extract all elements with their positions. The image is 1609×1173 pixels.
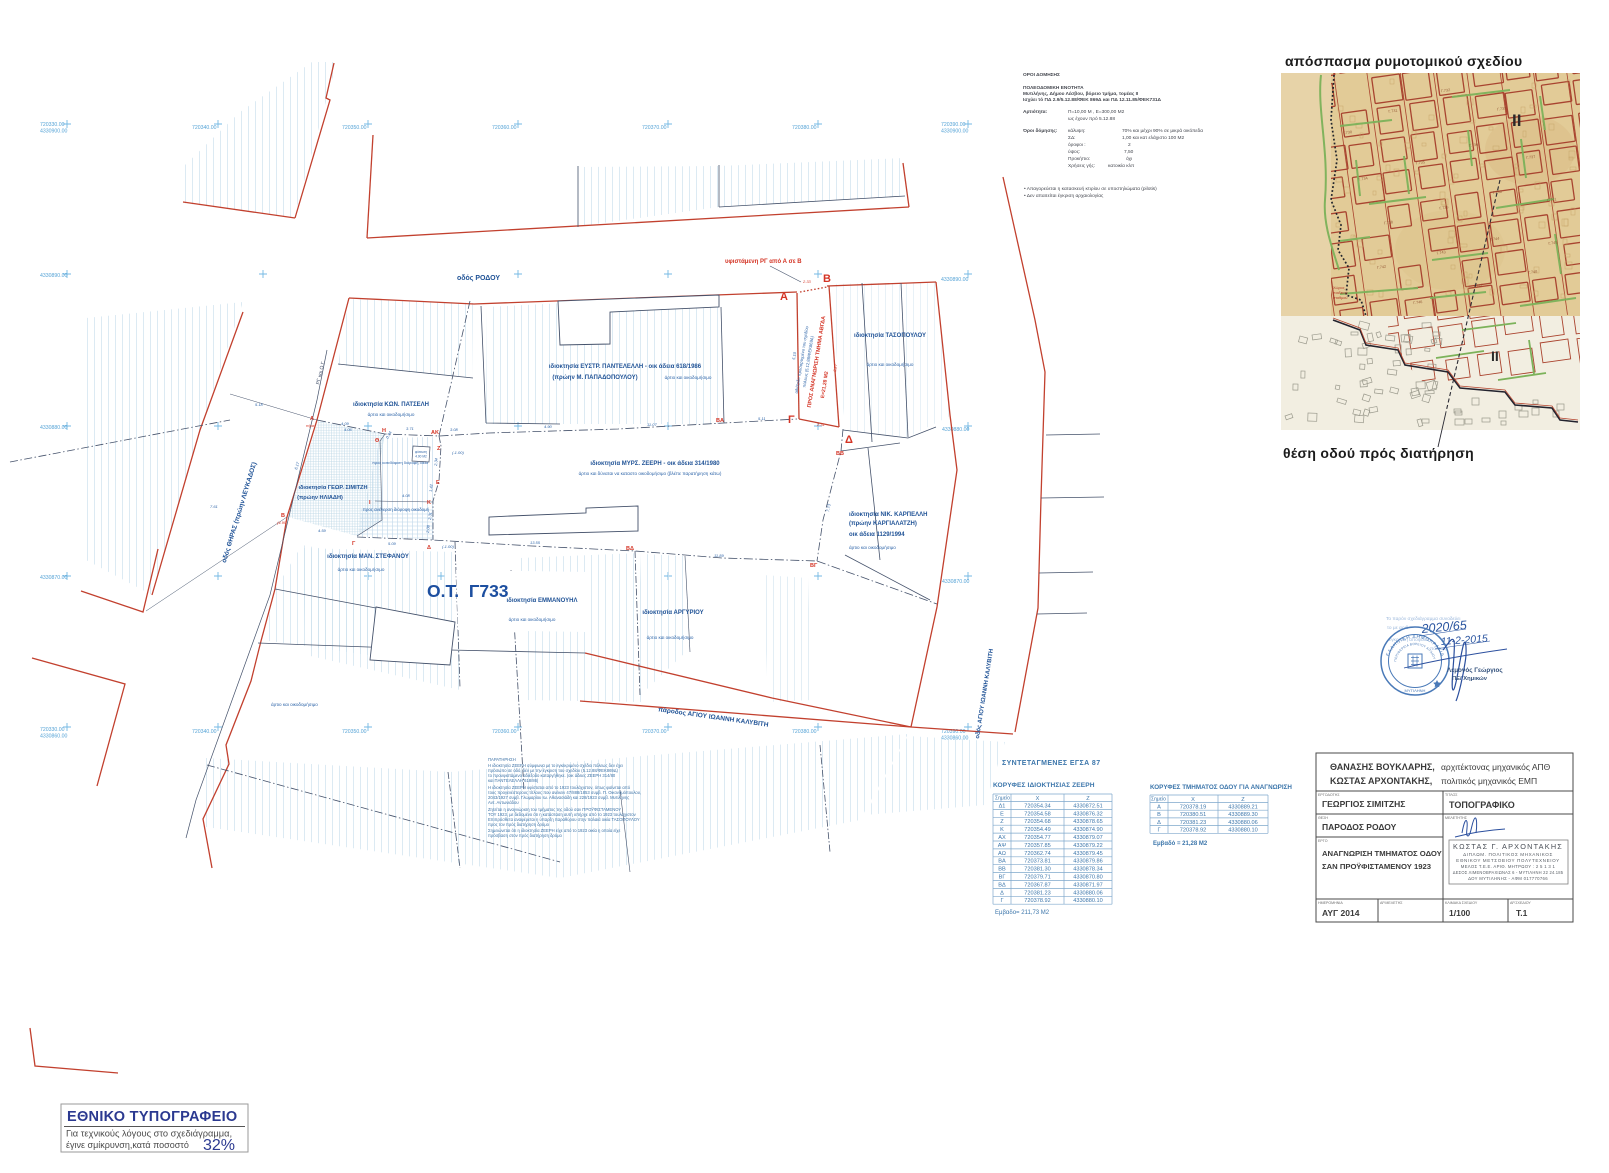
svg-text:4330900.00: 4330900.00 xyxy=(40,129,68,135)
svg-text:720340.00: 720340.00 xyxy=(192,125,217,131)
svg-text:5.11: 5.11 xyxy=(758,416,766,421)
svg-text:Γ: Γ xyxy=(1157,828,1160,834)
svg-text:4330870.00: 4330870.00 xyxy=(942,579,970,585)
svg-text:Δ1: Δ1 xyxy=(999,803,1006,809)
svg-text:ΔΙΠΛΩΜ. ΠΟΛΙΤΙΚΟΣ ΜΗΧΑΝΙΚΟΣ: ΔΙΠΛΩΜ. ΠΟΛΙΤΙΚΟΣ ΜΗΧΑΝΙΚΟΣ xyxy=(1463,852,1553,857)
svg-text:7,50: 7,50 xyxy=(1124,149,1134,155)
svg-text:ιδιοκτησία ΚΩΝ. ΠΑΤΣΕΛΗ: ιδιοκτησία ΚΩΝ. ΠΑΤΣΕΛΗ xyxy=(353,402,429,408)
svg-text:ΒΒ: ΒΒ xyxy=(998,867,1006,873)
svg-text:ιδιοκτησία ΤΑΣΟΠΟΥΛΟΥ: ιδιοκτησία ΤΑΣΟΠΟΥΛΟΥ xyxy=(854,333,926,339)
svg-text:ΒΔ: ΒΔ xyxy=(626,546,634,552)
svg-text:προς κατεδάφιση διόροφη οικία: προς κατεδάφιση διόροφη οικία xyxy=(372,460,429,465)
svg-text:ΣΥΝΤΕΤΑΓΜΕΝΕΣ ΕΓΣΑ 87: ΣΥΝΤΕΤΑΓΜΕΝΕΣ ΕΓΣΑ 87 xyxy=(1002,760,1101,767)
svg-text:8.27: 8.27 xyxy=(832,363,838,372)
svg-text:ΕΘΝΙΚΟΥ ΜΕΤΣΟΒΙΟΥ ΠΟΛΥΤΕΧΝΕΙ: ΕΘΝΙΚΟΥ ΜΕΤΣΟΒΙΟΥ ΠΟΛΥΤΕΧΝΕΙΟΥ xyxy=(1456,858,1560,863)
svg-text:720378.19: 720378.19 xyxy=(1180,804,1206,810)
svg-text:πάροδος ΑΓΙΟΥ ΙΩΑΝΝΗ ΚΑΛΥΒΙΤΗ: πάροδος ΑΓΙΟΥ ΙΩΑΝΝΗ ΚΑΛΥΒΙΤΗ xyxy=(658,706,769,728)
svg-text:ΑΥΓ 2014: ΑΥΓ 2014 xyxy=(1322,908,1360,918)
svg-text:οδός ΑΓΙΟΥ ΙΩΑΝΝΗ ΚΑΛΥΒΙΤΗ: οδός ΑΓΙΟΥ ΙΩΑΝΝΗ ΚΑΛΥΒΙΤΗ xyxy=(975,648,995,739)
svg-text:οικ άδεια 1129/1994: οικ άδεια 1129/1994 xyxy=(849,532,905,538)
svg-text:Μυτιλήνης, Δήμου Λέσβου, βόρει: Μυτιλήνης, Δήμου Λέσβου, βόρειο τμήμα, τ… xyxy=(1023,91,1139,97)
svg-text:X: X xyxy=(1036,796,1040,802)
svg-text:4330879.07: 4330879.07 xyxy=(1073,835,1103,841)
svg-text:720370.00: 720370.00 xyxy=(642,125,667,131)
svg-text:• Δεν απαιτείται έγκριση αρχαι: • Δεν απαιτείται έγκριση αρχαιολογίας xyxy=(1024,192,1104,199)
svg-text:1,00 και κατ ελάχιστο 100 Μ2: 1,00 και κατ ελάχιστο 100 Μ2 xyxy=(1122,134,1184,141)
svg-text:5.10: 5.10 xyxy=(791,351,797,360)
svg-text:πίρα: πίρα xyxy=(306,423,315,428)
svg-text:11.07: 11.07 xyxy=(647,422,657,427)
svg-text:ιδιοκτησία ΕΥΣΤΡ. ΠΑΝΤΕΛΕΛΛΗ -: ιδιοκτησία ΕΥΣΤΡ. ΠΑΝΤΕΛΕΛΛΗ - οικ άδεια… xyxy=(549,364,702,370)
svg-text:ΜΕΛΟΣ Τ.Ε.Ε. ΑΡΙΘ. Μ: ΜΕΛΟΣ Τ.Ε.Ε. ΑΡΙΘ. ΜΗΤΡΩΟΥ : 2 5 1 3 1 xyxy=(1461,864,1556,869)
svg-text:4.59: 4.59 xyxy=(318,528,327,533)
svg-text:720370.00: 720370.00 xyxy=(642,729,667,735)
svg-text:όροφοι :: όροφοι : xyxy=(1068,141,1086,148)
svg-text:άρτιο και δύναται να καταστο ο: άρτιο και δύναται να καταστο οικοδομήσιμ… xyxy=(579,470,722,476)
svg-text:720360.00: 720360.00 xyxy=(492,729,517,735)
svg-text:720330.00: 720330.00 xyxy=(40,727,65,733)
svg-text:4.90: 4.90 xyxy=(544,424,553,429)
svg-text:4330879.86: 4330879.86 xyxy=(1073,859,1103,865)
svg-text:4330880.00: 4330880.00 xyxy=(40,425,68,431)
svg-text:ΔΕΣΟΣ ΛΙΜΕΝΟΒΡΑΧΙΩΝΑΣ 6 - ΜΥΤ: ΔΕΣΟΣ ΛΙΜΕΝΟΒΡΑΧΙΩΝΑΣ 6 - ΜΥΤΙΛΗΝΗ 22 24… xyxy=(1453,870,1564,875)
svg-text:Λεμονός Γεώργιος: Λεμονός Γεώργιος xyxy=(1447,667,1503,674)
svg-text:ΘΕΣΗ: ΘΕΣΗ xyxy=(1318,816,1328,820)
svg-text:13.55: 13.55 xyxy=(530,540,541,545)
svg-text:720378.92: 720378.92 xyxy=(1180,828,1206,834)
svg-text:ως έχουν πρό 5.12.88: ως έχουν πρό 5.12.88 xyxy=(1068,115,1115,122)
svg-text:720354.58: 720354.58 xyxy=(1024,811,1050,817)
svg-text:πολιτικός μηχανικός ΕΜΠ: πολιτικός μηχανικός ΕΜΠ xyxy=(1441,776,1537,786)
svg-text:Ισχύει τό ΠΔ 2.9/5.12.88/ΦΕΚ 8: Ισχύει τό ΠΔ 2.9/5.12.88/ΦΕΚ 869Δ και ΠΔ… xyxy=(1023,97,1162,103)
svg-text:720360.00: 720360.00 xyxy=(492,125,517,131)
svg-text:Δ: Δ xyxy=(845,434,853,446)
svg-text:άρτιο και οικοδομήσιμο: άρτιο και οικοδομήσιμο xyxy=(271,701,318,707)
svg-text:4330872.51: 4330872.51 xyxy=(1073,803,1103,809)
svg-text:πρόσβαση στον πρός διατήρηση δ: πρόσβαση στον πρός διατήρηση δρόμο xyxy=(488,833,563,838)
svg-text:παιδικού: παιδικού xyxy=(1333,291,1348,295)
svg-text:ΡΓ και Ο.Γ.: ΡΓ και Ο.Γ. xyxy=(315,360,327,385)
svg-text:4330900.00: 4330900.00 xyxy=(941,129,969,135)
svg-text:θέση οδού πρός διατήρηση: θέση οδού πρός διατήρηση xyxy=(1283,445,1474,461)
svg-text:4330876.32: 4330876.32 xyxy=(1073,811,1103,817)
svg-text:ΒΒ: ΒΒ xyxy=(836,451,844,457)
svg-text:ΑΩ: ΑΩ xyxy=(998,851,1006,857)
svg-text:2.33: 2.33 xyxy=(802,279,812,284)
svg-text:4330889.21: 4330889.21 xyxy=(1228,804,1258,810)
svg-text:ΤΙΤΛΟΣ: ΤΙΤΛΟΣ xyxy=(1445,793,1458,797)
svg-text:Π=10,00 Μ , Ε=300,00 Μ2: Π=10,00 Μ , Ε=300,00 Μ2 xyxy=(1068,109,1125,115)
svg-text:κατοικία κλπ: κατοικία κλπ xyxy=(1108,163,1135,169)
svg-text:προς τον πρός διατήρηση δρόμο: προς τον πρός διατήρηση δρόμο xyxy=(488,822,550,827)
svg-text:ιδιοκτησία ΝΙΚ. ΚΑΡΠΕΛΛΗ: ιδιοκτησία ΝΙΚ. ΚΑΡΠΕΛΛΗ xyxy=(849,512,927,518)
svg-text:Εμβαδό = 21,28 Μ2: Εμβαδό = 21,28 Μ2 xyxy=(1153,841,1208,847)
svg-text:απόσπασμα ρυμοτομικού σχεδίου: απόσπασμα ρυμοτομικού σχεδίου xyxy=(1285,53,1522,69)
svg-text:(πρώην ΗΛΙΑΔΗ): (πρώην ΗΛΙΑΔΗ) xyxy=(297,495,343,501)
svg-text:κάλυψη:: κάλυψη: xyxy=(1068,127,1085,134)
svg-text:ΤΟΠΟΓΡΑΦΙΚΟ: ΤΟΠΟΓΡΑΦΙΚΟ xyxy=(1449,800,1515,810)
svg-text:Α: Α xyxy=(1157,804,1161,810)
svg-text:ΒΑ: ΒΑ xyxy=(998,859,1006,865)
svg-text:4330880.06: 4330880.06 xyxy=(1073,890,1103,896)
svg-text:Z: Z xyxy=(1241,797,1245,803)
svg-text:4330871.97: 4330871.97 xyxy=(1073,882,1103,888)
svg-text:Χρήσεις γής:: Χρήσεις γής: xyxy=(1068,162,1095,169)
svg-text:4.06: 4.06 xyxy=(344,427,353,432)
svg-text:5.18: 5.18 xyxy=(255,402,264,407)
svg-text:Ο.Τ. Γ733: Ο.Τ. Γ733 xyxy=(427,581,509,601)
svg-text:2.34: 2.34 xyxy=(433,457,439,467)
svg-text:σταθμού: σταθμού xyxy=(1333,296,1347,300)
svg-text:Δ: Δ xyxy=(1157,820,1161,826)
svg-text:720378.92: 720378.92 xyxy=(1024,898,1050,904)
svg-text:ΘΑΝΑΣΗΣ ΒΟΥΚΛΑΡΗΣ,: ΘΑΝΑΣΗΣ ΒΟΥΚΛΑΡΗΣ, xyxy=(1330,762,1435,772)
svg-text:2: 2 xyxy=(1128,142,1131,148)
svg-text:Α: Α xyxy=(780,291,788,303)
svg-text:11.89: 11.89 xyxy=(714,553,724,558)
svg-text:2.31: 2.31 xyxy=(427,512,433,521)
svg-text:Γ: Γ xyxy=(1000,898,1003,904)
svg-text:ΚΟΡΥΦΕΣ ΤΜΗΜΑΤΟΣ ΟΔΟΥ ΓΙΑ ΑΝΑΓ: ΚΟΡΥΦΕΣ ΤΜΗΜΑΤΟΣ ΟΔΟΥ ΓΙΑ ΑΝΑΓΝΩΡΙΣΗ xyxy=(1150,784,1292,791)
svg-text:4.09: 4.09 xyxy=(341,421,350,426)
svg-text:ΕΡΓΟ: ΕΡΓΟ xyxy=(1318,839,1328,843)
svg-text:720373.81: 720373.81 xyxy=(1024,859,1050,865)
svg-text:(πρώην ΚΑΡΓΙΑΛΑΤΖΗ): (πρώην ΚΑΡΓΙΑΛΑΤΖΗ) xyxy=(849,521,917,527)
svg-text:άρτιο και οικοδομήσιμο: άρτιο και οικοδομήσιμο xyxy=(867,361,914,367)
svg-text:Β: Β xyxy=(1157,812,1161,818)
svg-text:ΕΘΝΙΚΟ ΤΥΠΟΓΡΑΦΕΙΟ: ΕΘΝΙΚΟ ΤΥΠΟΓΡΑΦΕΙΟ xyxy=(67,1109,238,1125)
svg-text:(πρώην Μ. ΠΑΠΑΔΟΠΟΥΛΟΥ): (πρώην Μ. ΠΑΠΑΔΟΠΟΥΛΟΥ) xyxy=(552,375,637,381)
svg-text:3.71: 3.71 xyxy=(406,426,414,431)
svg-text:720354.49: 720354.49 xyxy=(1024,827,1050,833)
svg-text:και ΠΑΝΤΕΛΕΛΛΗ 618/86): και ΠΑΝΤΕΛΕΛΛΗ 618/86) xyxy=(488,778,539,783)
svg-text:ΣΑΝ ΠΡΟΫΦΙΣΤΑΜΕΝΟΥ 1923: ΣΑΝ ΠΡΟΫΦΙΣΤΑΜΕΝΟΥ 1923 xyxy=(1322,862,1431,871)
svg-text:4.00 Μ2: 4.00 Μ2 xyxy=(415,455,427,459)
svg-text:4330860.00: 4330860.00 xyxy=(40,734,68,740)
svg-text:άρτιο και οικοδομήσιμο: άρτιο και οικοδομήσιμο xyxy=(665,374,712,380)
svg-text:• Απαγορεύεται η κατασκευή κτι: • Απαγορεύεται η κατασκευή κτιρίου σε υπ… xyxy=(1024,185,1157,192)
svg-text:ιδιοκτησία ΕΜΜΑΝΟΥΗΛ: ιδιοκτησία ΕΜΜΑΝΟΥΗΛ xyxy=(507,598,578,604)
svg-text:προς ανέγερση διόροφη οικοδομή: προς ανέγερση διόροφη οικοδομή xyxy=(363,507,430,512)
svg-text:Ε: Ε xyxy=(436,480,440,486)
svg-text:Προκήπιο:: Προκήπιο: xyxy=(1068,155,1090,162)
svg-text:Όροι δόμησης:: Όροι δόμησης: xyxy=(1022,128,1058,134)
svg-text:4330890.00: 4330890.00 xyxy=(40,273,68,279)
svg-text:ΜΕΛΕΤΗΤΗΣ: ΜΕΛΕΤΗΤΗΣ xyxy=(1445,816,1468,820)
svg-text:Αρτιότητα:: Αρτιότητα: xyxy=(1023,109,1048,115)
svg-text:ΑΝΑΓΝΩΡΙΣΗ ΤΜΗΜΑΤΟΣ ΟΔΟΥ: ΑΝΑΓΝΩΡΙΣΗ ΤΜΗΜΑΤΟΣ ΟΔΟΥ xyxy=(1322,849,1442,858)
svg-text:720367.87: 720367.87 xyxy=(1024,882,1050,888)
svg-text:720362.74: 720362.74 xyxy=(1024,851,1050,857)
svg-text:720381.23: 720381.23 xyxy=(1180,820,1206,826)
svg-text:όχι: όχι xyxy=(1126,155,1132,162)
svg-text:4330870.00: 4330870.00 xyxy=(40,575,68,581)
svg-text:ιδιοκτησία ΑΡΓΥΡΙΟΥ: ιδιοκτησία ΑΡΓΥΡΙΟΥ xyxy=(642,610,703,616)
svg-text:άρτιο και οικοδομήσιμο: άρτιο και οικοδομήσιμο xyxy=(509,616,556,622)
svg-text:ΠΑΡΑΤΗΡΗΣΗ: ΠΑΡΑΤΗΡΗΣΗ xyxy=(488,757,516,762)
svg-text:ΑΨ: ΑΨ xyxy=(998,843,1007,849)
svg-text:720350.00: 720350.00 xyxy=(342,125,367,131)
svg-text:2.08: 2.08 xyxy=(425,524,431,534)
svg-text:Σημείο: Σημείο xyxy=(1151,797,1166,803)
svg-text:ύψος:: ύψος: xyxy=(1068,148,1080,155)
svg-text:ιδιοκτησία ΜΥΡΣ. ΖΕΕΡΗ - οικ: ιδιοκτησία ΜΥΡΣ. ΖΕΕΡΗ - οικ άδεια 314/1… xyxy=(590,461,720,467)
svg-text:4330878.65: 4330878.65 xyxy=(1073,819,1103,825)
svg-text:1.42: 1.42 xyxy=(428,483,434,492)
svg-text:ΒΓ: ΒΓ xyxy=(810,563,818,569)
svg-text:άρτιο και οικοδομήσιμο: άρτιο και οικοδομήσιμο xyxy=(647,634,694,640)
svg-text:720350.00: 720350.00 xyxy=(342,729,367,735)
svg-text:ΠΟΛΕΟΔΟΜΙΚΗ ΕΝΟΤΗΤΑ: ΠΟΛΕΟΔΟΜΙΚΗ ΕΝΟΤΗΤΑ xyxy=(1023,85,1084,91)
svg-text:ΑΧ: ΑΧ xyxy=(998,835,1006,841)
svg-text:1/100: 1/100 xyxy=(1449,908,1471,918)
svg-text:ΙΙ: ΙΙ xyxy=(1491,348,1499,364)
svg-text:Β: Β xyxy=(281,513,285,519)
svg-text:Β: Β xyxy=(823,273,831,285)
svg-text:720381.30: 720381.30 xyxy=(1024,867,1050,873)
svg-text:Χώρος: Χώρος xyxy=(1333,286,1345,290)
svg-text:ΜΥΤΙΛΗΝΗ: ΜΥΤΙΛΗΝΗ xyxy=(1405,688,1426,693)
svg-text:2020/65: 2020/65 xyxy=(1420,618,1467,636)
svg-text:ΒΓ: ΒΓ xyxy=(999,875,1006,881)
svg-text:4330880.00: 4330880.00 xyxy=(942,427,970,433)
svg-text:ΠΕΡΙΦΕΡΕΙΑ ΒΟΡΕΙΟΥ ΑΙΓΑΙΟΥ: ΠΕΡΙΦΕΡΕΙΑ ΒΟΡΕΙΟΥ ΑΙΓΑΙΟΥ xyxy=(1393,642,1436,662)
svg-text:ΒΔ: ΒΔ xyxy=(998,882,1006,888)
svg-text:Η: Η xyxy=(382,428,386,434)
svg-text:Κ: Κ xyxy=(1000,827,1004,833)
svg-text:αρχιτέκτονας μηχανικός ΑΠΘ: αρχιτέκτονας μηχανικός ΑΠΘ xyxy=(1441,762,1551,772)
svg-text:Τ.1: Τ.1 xyxy=(1516,908,1528,918)
svg-text:ΒΑ: ΒΑ xyxy=(716,418,724,424)
svg-text:4330880.10: 4330880.10 xyxy=(1073,898,1103,904)
svg-text:ΔΟΥ ΜΥΤΙΛΗΝΗΣ - ΑΦΜ 0177: ΔΟΥ ΜΥΤΙΛΗΝΗΣ - ΑΦΜ 017770766 xyxy=(1468,876,1548,881)
svg-text:οδός ΡΟΔΟΥ: οδός ΡΟΔΟΥ xyxy=(457,275,500,282)
svg-text:Ε: Ε xyxy=(1000,811,1004,817)
svg-text:32%: 32% xyxy=(203,1137,235,1154)
svg-text:ιδιοκτησία ΜΑΝ. ΣΤΕΦΑΝΟΥ: ιδιοκτησία ΜΑΝ. ΣΤΕΦΑΝΟΥ xyxy=(327,554,409,560)
svg-text:άρτιο και οικοδομήσιμο: άρτιο και οικοδομήσιμο xyxy=(849,544,896,550)
svg-text:ΣΔ:: ΣΔ: xyxy=(1068,135,1076,141)
svg-text:11-2-2015: 11-2-2015 xyxy=(1440,633,1488,648)
svg-text:Ε=21,28 Μ2: Ε=21,28 Μ2 xyxy=(820,371,830,399)
svg-text:70% και μέχρι 90% σε μικρά οι: 70% και μέχρι 90% σε μικρά οικόπεδα xyxy=(1122,127,1203,134)
svg-text:άρτιο και οικοδομήσιμο: άρτιο και οικοδομήσιμο xyxy=(338,566,385,572)
svg-text:Ζ: Ζ xyxy=(1000,819,1004,825)
svg-text:4330880.06: 4330880.06 xyxy=(1228,820,1258,826)
svg-text:6.17: 6.17 xyxy=(293,461,300,471)
svg-text:Εμβαδο= 211,73 Μ2: Εμβαδο= 211,73 Μ2 xyxy=(995,910,1050,916)
svg-text:720380.00: 720380.00 xyxy=(792,729,817,735)
svg-text:(4.99: (4.99 xyxy=(277,520,287,525)
svg-text:Α: Α xyxy=(310,416,314,422)
svg-text:4330879.22: 4330879.22 xyxy=(1073,843,1103,849)
svg-text:(-1.00): (-1.00) xyxy=(442,544,454,549)
svg-text:5.09: 5.09 xyxy=(388,541,397,546)
svg-text:X: X xyxy=(1191,797,1195,803)
svg-text:ΙΙ: ΙΙ xyxy=(1512,111,1521,130)
svg-text:Θ: Θ xyxy=(375,438,380,444)
svg-text:ΚΩΣΤΑΣ Γ. ΑΡΧΟΝΤΑΚΗΣ: ΚΩΣΤΑΣ Γ. ΑΡΧΟΝΤΑΚΗΣ xyxy=(1453,842,1563,851)
svg-text:Γ: Γ xyxy=(352,541,356,547)
svg-text:ΕΡΓΟΔΟΤΗΣ: ΕΡΓΟΔΟΤΗΣ xyxy=(1318,793,1340,797)
svg-text:3.08: 3.08 xyxy=(450,427,459,432)
svg-text:ΚΛΙΜΑΚΑ ΣΧΕΔΙΟΥ: ΚΛΙΜΑΚΑ ΣΧΕΔΙΟΥ xyxy=(1445,901,1478,905)
svg-text:Σημείο: Σημείο xyxy=(995,796,1010,802)
svg-text:υφιστάμενη ΡΓ από Α σε Β: υφιστάμενη ΡΓ από Α σε Β xyxy=(725,259,802,265)
svg-text:720330.00: 720330.00 xyxy=(40,122,65,128)
svg-text:άρτιο και οικοδομήσιμο: άρτιο και οικοδομήσιμο xyxy=(368,411,415,417)
svg-text:720380.00: 720380.00 xyxy=(792,125,817,131)
svg-text:Δ: Δ xyxy=(427,545,431,551)
svg-text:7.61: 7.61 xyxy=(210,504,218,509)
svg-text:720357.85: 720357.85 xyxy=(1024,843,1050,849)
svg-text:ΟΡΟΙ ΔΟΜΗΣΗΣ: ΟΡΟΙ ΔΟΜΗΣΗΣ xyxy=(1023,72,1060,78)
svg-text:4330878.34: 4330878.34 xyxy=(1073,867,1103,873)
svg-text:7.73: 7.73 xyxy=(825,503,832,512)
svg-text:ΚΟΡΥΦΕΣ ΙΔΙΟΚΤΗΣΙΑΣ ΖΕΕΡΗ: ΚΟΡΥΦΕΣ ΙΔΙΟΚΤΗΣΙΑΣ ΖΕΕΡΗ xyxy=(993,782,1095,789)
svg-text:ΗΜΕΡΟΜΗΝΙΑ: ΗΜΕΡΟΜΗΝΙΑ xyxy=(1318,901,1343,905)
svg-text:ΠΕ/ Χημικών: ΠΕ/ Χημικών xyxy=(1452,676,1487,682)
svg-text:ΑΚ: ΑΚ xyxy=(431,430,439,436)
svg-text:(-1.00): (-1.00) xyxy=(452,450,464,455)
svg-text:Z: Z xyxy=(1086,796,1090,802)
svg-text:ιδιοκτησία ΓΕΩΡ. ΣΙΜΙΤΖΗ: ιδιοκτησία ΓΕΩΡ. ΣΙΜΙΤΖΗ xyxy=(298,485,367,491)
svg-text:720354.68: 720354.68 xyxy=(1024,819,1050,825)
svg-text:4.08: 4.08 xyxy=(402,493,411,498)
svg-text:ΓΕΩΡΓΙΟΣ ΣΙΜΙΤΖΗΣ: ΓΕΩΡΓΙΟΣ ΣΙΜΙΤΖΗΣ xyxy=(1322,799,1405,809)
svg-text:720390.00: 720390.00 xyxy=(941,122,966,128)
svg-text:720354.77: 720354.77 xyxy=(1024,835,1050,841)
svg-text:Κ: Κ xyxy=(427,500,431,506)
svg-text:720354.34: 720354.34 xyxy=(1024,803,1050,809)
svg-text:720381.23: 720381.23 xyxy=(1024,890,1050,896)
svg-text:4330880.10: 4330880.10 xyxy=(1228,828,1258,834)
svg-text:έγινε σμίκρυνση,κατά ποσοστό: έγινε σμίκρυνση,κατά ποσοστό xyxy=(66,1140,189,1150)
svg-text:Αντ. Αντωνιάδου: Αντ. Αντωνιάδου xyxy=(488,800,519,805)
svg-text:4330890.00: 4330890.00 xyxy=(941,277,969,283)
svg-text:ΑΡ.ΣΧΕΔΙΟΥ: ΑΡ.ΣΧΕΔΙΟΥ xyxy=(1510,901,1531,905)
svg-text:φύτευση: φύτευση xyxy=(415,450,427,454)
svg-text:ΑΡ.ΜΕΛΕΤΗΣ: ΑΡ.ΜΕΛΕΤΗΣ xyxy=(1380,901,1403,905)
svg-text:ΚΩΣΤΑΣ ΑΡΧΟΝΤΑΚΗΣ,: ΚΩΣΤΑΣ ΑΡΧΟΝΤΑΚΗΣ, xyxy=(1330,776,1432,786)
svg-text:720379.71: 720379.71 xyxy=(1024,875,1050,881)
svg-text:2.31: 2.31 xyxy=(816,422,825,427)
svg-text:Δ: Δ xyxy=(1000,890,1004,896)
svg-text:720380.51: 720380.51 xyxy=(1180,812,1206,818)
svg-text:Γ: Γ xyxy=(788,414,795,426)
svg-text:ΠΑΡΟΔΟΣ ΡΟΔΟΥ: ΠΑΡΟΔΟΣ ΡΟΔΟΥ xyxy=(1322,822,1397,832)
svg-text:4330870.80: 4330870.80 xyxy=(1073,875,1103,881)
svg-text:4330874.90: 4330874.90 xyxy=(1073,827,1103,833)
svg-text:4330879.45: 4330879.45 xyxy=(1073,851,1103,857)
svg-text:720340.00: 720340.00 xyxy=(192,729,217,735)
svg-text:4330889.30: 4330889.30 xyxy=(1228,812,1258,818)
